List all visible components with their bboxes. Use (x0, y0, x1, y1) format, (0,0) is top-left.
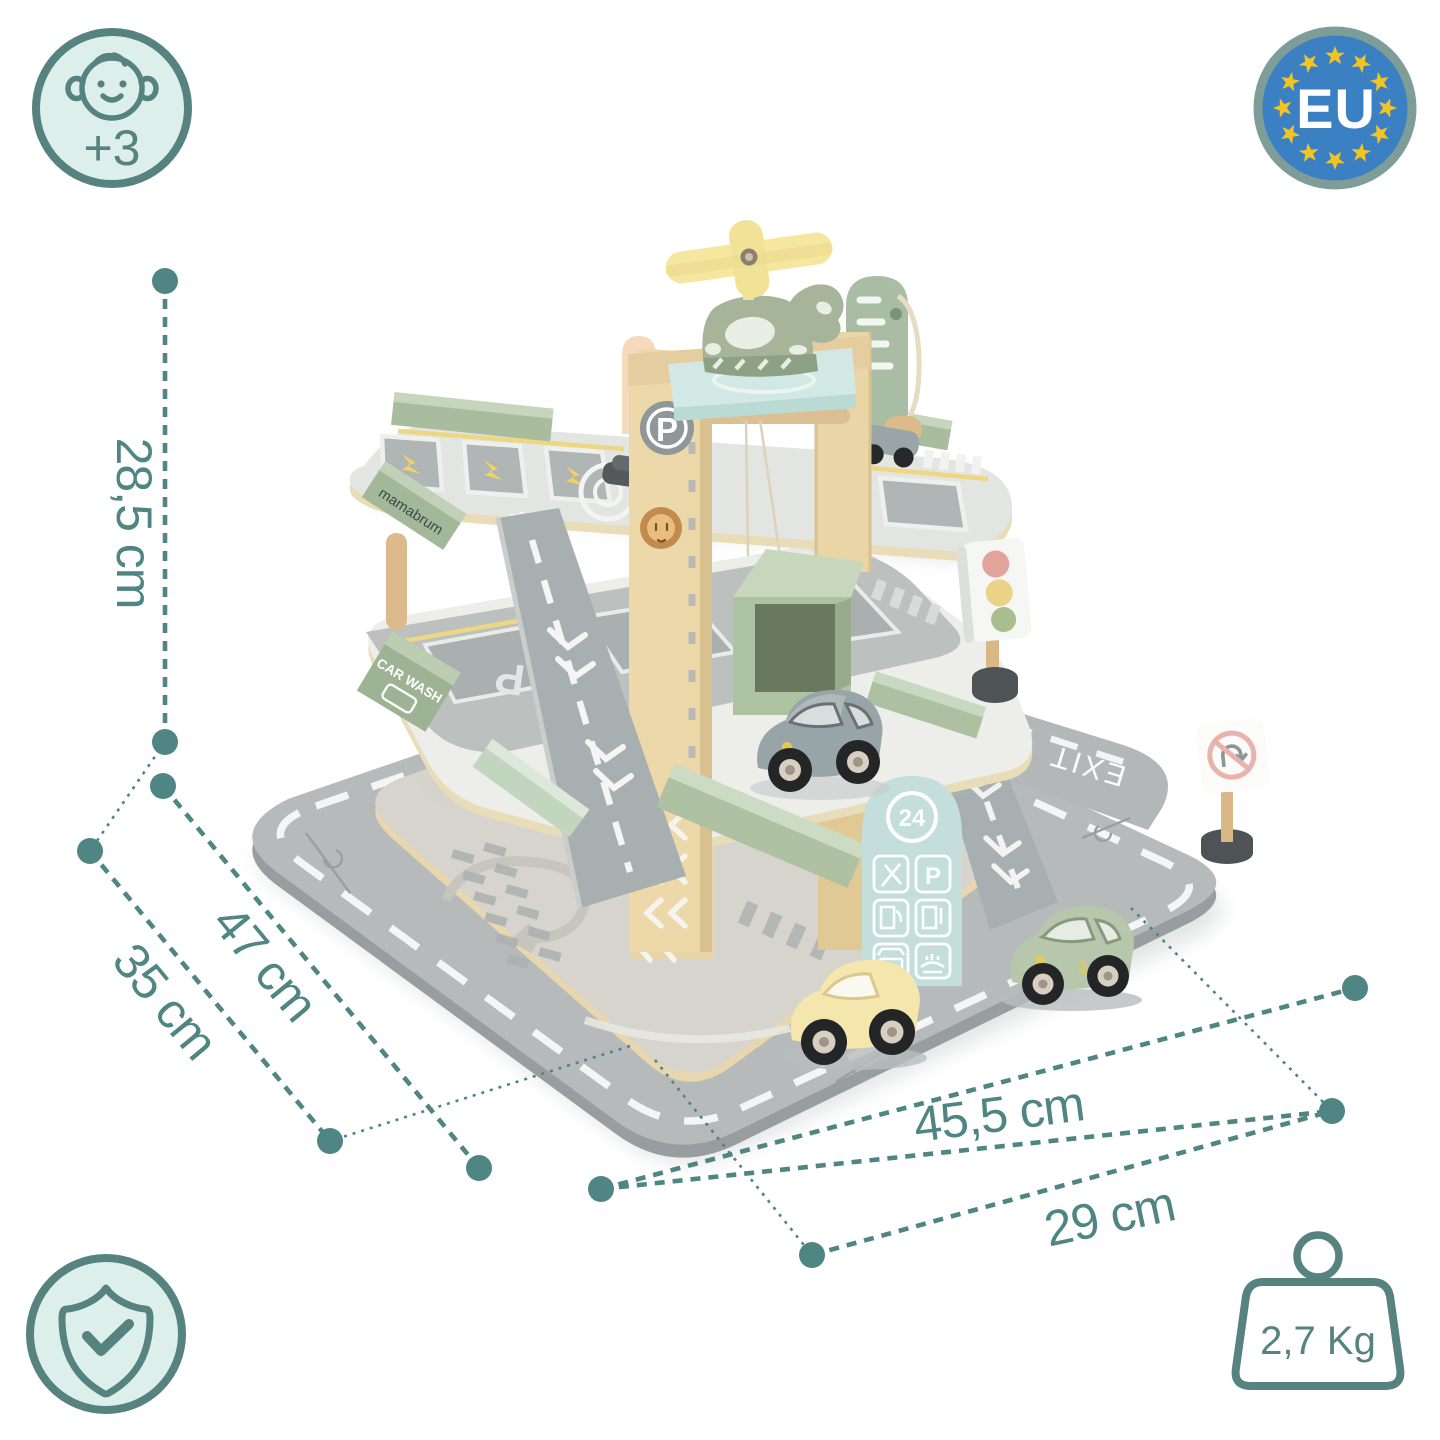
svg-text:2,7 Kg: 2,7 Kg (1260, 1319, 1376, 1363)
svg-text:35 cm: 35 cm (102, 933, 229, 1070)
svg-text:45,5 cm: 45,5 cm (910, 1075, 1087, 1153)
svg-text:P: P (925, 863, 941, 890)
svg-text:+3: +3 (83, 120, 140, 176)
svg-text:28,5 cm: 28,5 cm (106, 438, 162, 609)
svg-text:EU: EU (1296, 77, 1376, 140)
